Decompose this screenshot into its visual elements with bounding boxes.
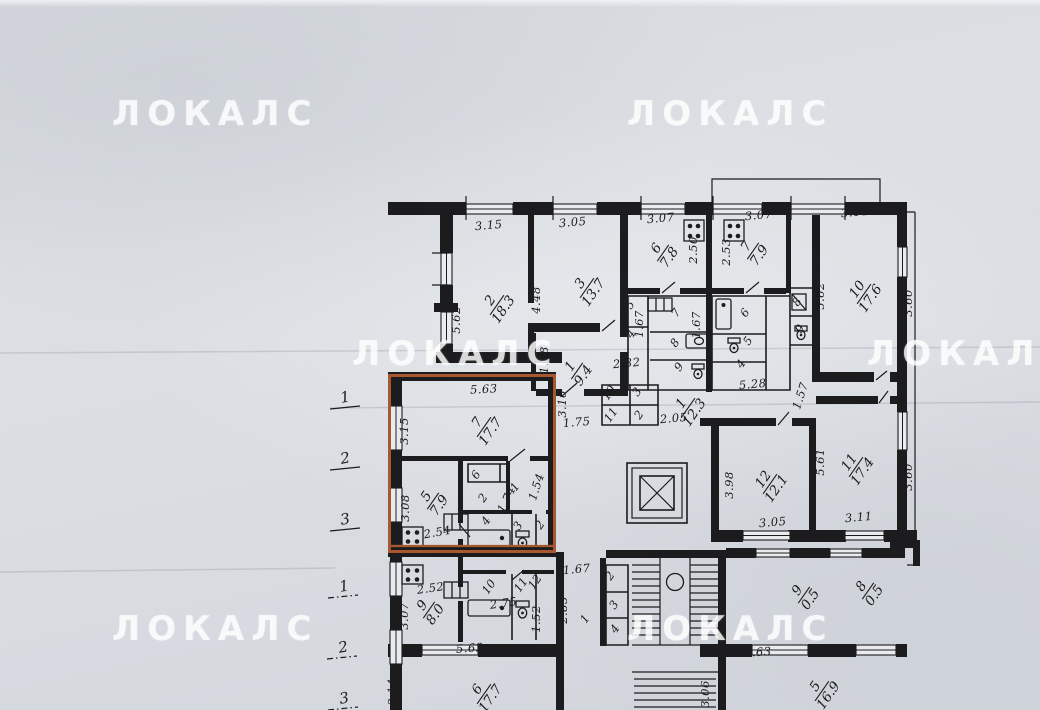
- dim-label: 3.07: [397, 602, 411, 630]
- small-room-label: 2: [630, 408, 646, 423]
- small-room-label: 2: [474, 491, 490, 506]
- walls: [388, 202, 920, 710]
- small-room-label: 7: [668, 305, 684, 320]
- toilet-icon: [516, 601, 529, 618]
- window: [856, 645, 896, 655]
- small-room-label: 4: [477, 514, 493, 529]
- dim-label: 3.98: [722, 471, 736, 499]
- dim-label: 1.67: [632, 310, 646, 338]
- room-label: 98.0: [410, 592, 449, 628]
- axis-label: 3: [338, 688, 351, 707]
- toilet-icon: [692, 364, 704, 379]
- dim-label: 1.75: [562, 414, 591, 430]
- dim-label: 1.54: [525, 471, 547, 502]
- dim-label: 1.67: [689, 311, 703, 339]
- dim-label: 2.05: [658, 410, 688, 426]
- small-room-labels: 7 8 9 5 4 6 5 4 8 9 10 11 3 2 6 2 1 4 3 …: [468, 295, 808, 637]
- small-room-label: 6: [468, 468, 484, 482]
- dim-label: 1.52: [529, 605, 543, 633]
- floor-plan: 218.3 313.7 67.8 77.9 1017.6 19.4 112.3 …: [0, 0, 1040, 710]
- dim-label: 3.07: [744, 207, 773, 223]
- dim-label: 3.14: [840, 204, 869, 220]
- dim-label: 1.67: [562, 561, 591, 577]
- dimension-labels: 3.15 3.05 3.07 3.07 3.14 5.62 4.48 2.50 …: [385, 204, 915, 708]
- room-label: 1117.4: [834, 446, 877, 489]
- room-label: 90.5: [785, 577, 824, 613]
- dim-label: 2.83: [556, 596, 570, 625]
- axis-label: 2: [338, 448, 352, 468]
- dim-label: 3.60: [901, 463, 915, 491]
- dim-label: 3.07: [646, 210, 675, 226]
- window: [830, 549, 862, 557]
- shelf-icon: [444, 582, 468, 598]
- small-room-label: 3: [606, 598, 622, 612]
- dim-label: 2.75: [488, 594, 518, 612]
- dim-label: 1.57: [789, 380, 811, 411]
- window: [466, 204, 513, 214]
- balcony-top-right: [712, 179, 880, 203]
- room-label: 1017.6: [842, 272, 886, 315]
- axis-label: 1: [339, 387, 352, 406]
- window: [898, 412, 907, 450]
- stove-icon: [724, 220, 744, 241]
- dim-label: 5.63: [470, 381, 498, 396]
- small-room-label: 4: [732, 357, 748, 372]
- window: [845, 531, 884, 540]
- dim-label: 3.14: [385, 678, 399, 706]
- small-room-label: 9: [671, 360, 687, 374]
- dim-label: 2.50: [686, 236, 700, 265]
- room-label: 313.7: [565, 266, 609, 309]
- wall-fills: [388, 202, 920, 710]
- dim-label: 5.62: [813, 282, 827, 310]
- dim-label: 1.08: [537, 346, 551, 374]
- stove-icon: [402, 527, 423, 546]
- dim-label: 2.54: [422, 523, 453, 542]
- small-room-label: 8: [667, 336, 683, 350]
- small-room-label: 1: [577, 612, 593, 626]
- window: [743, 531, 790, 540]
- dim-label: 3.08: [398, 494, 412, 522]
- small-room-label: 3: [629, 385, 645, 399]
- room-label-highlighted: 717.7: [462, 405, 506, 448]
- axis-label: 1: [338, 576, 351, 595]
- stair-circle: [667, 574, 684, 591]
- small-room-label: 11: [601, 405, 621, 425]
- dim-label: 2.52: [415, 579, 445, 597]
- dim-label: 3.06: [698, 680, 712, 708]
- small-room-label: 10: [479, 577, 499, 597]
- room-label: 19.4: [558, 353, 597, 389]
- scanned-floorplan-page: 218.3 313.7 67.8 77.9 1017.6 19.4 112.3 …: [0, 0, 1040, 710]
- bathtub-icon: [468, 530, 510, 546]
- window: [791, 204, 845, 214]
- balcony-right-slab: [907, 212, 915, 565]
- dim-label: 5.63: [455, 640, 484, 656]
- room-label: 77.9: [734, 233, 773, 269]
- dim-label: 3.15: [474, 217, 503, 233]
- small-room-label: 6: [737, 306, 753, 320]
- dim-label: 3.11: [844, 509, 873, 525]
- dim-label: 5.62: [449, 306, 463, 334]
- dim-label: 3.15: [397, 417, 411, 445]
- small-room-label: 12: [525, 572, 545, 592]
- axis-label: 3: [339, 509, 352, 528]
- window: [390, 562, 402, 596]
- window: [441, 253, 452, 285]
- dim-label: 2.32: [611, 355, 641, 371]
- axis-underline: [328, 595, 358, 598]
- dim-label: 5.28: [738, 376, 767, 392]
- elevator-icon: [627, 463, 687, 523]
- room-label: 67.8: [644, 235, 683, 271]
- axis-underline: [330, 528, 360, 531]
- dim-label: 5.61: [813, 448, 827, 476]
- room-label: 1212.1: [748, 463, 791, 506]
- dim-label: 3.60: [901, 289, 915, 317]
- small-room-label: 4: [606, 622, 622, 637]
- axis-label: 2: [336, 637, 350, 657]
- window: [553, 204, 597, 214]
- small-room-label: 2: [531, 518, 547, 533]
- small-room-label: 5: [740, 334, 756, 348]
- dim-label: 4.48: [529, 286, 543, 315]
- window: [390, 630, 402, 664]
- room-label: 80.5: [849, 573, 888, 609]
- dim-label: 3.16: [555, 390, 569, 418]
- window: [756, 549, 790, 557]
- bathtub-icon: [716, 299, 731, 329]
- axis-underline: [330, 467, 360, 470]
- room-label: 617.7: [462, 672, 506, 710]
- toilet-icon: [728, 338, 740, 353]
- dim-label: 3.05: [758, 514, 787, 530]
- window: [898, 247, 907, 277]
- dim-label: 2.53: [719, 238, 733, 267]
- stove-icon: [402, 565, 423, 584]
- dim-label: 3.05: [558, 214, 587, 230]
- dim-label: 5.63: [743, 644, 772, 660]
- room-label: 516.9: [800, 669, 844, 710]
- room-label: 218.3: [475, 284, 518, 327]
- shelf-icon: [648, 298, 672, 311]
- axis-labels: 1 2 3 1 2 3: [327, 387, 360, 710]
- axis-underline: [327, 656, 357, 659]
